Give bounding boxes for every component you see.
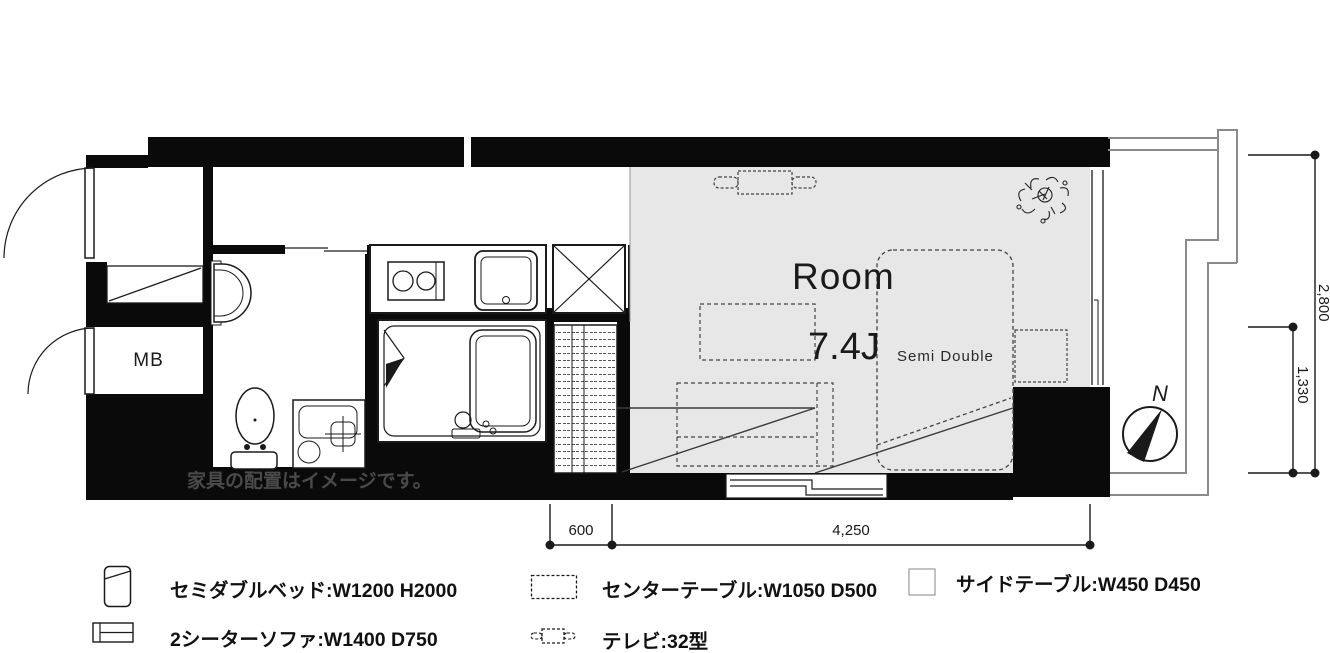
legend-side-table-label: サイドテーブル:W450 D450 [956,568,1201,597]
dimension-room-depth: 2,800 [1315,284,1330,322]
meter-box-label: MB [94,327,203,394]
side-table-icon [908,568,937,602]
compass [1123,407,1177,462]
tv-icon [530,627,576,650]
kitchen-counter [370,245,546,313]
dimension-balcony-depth: 1,330 [1294,366,1311,404]
floorplan-canvas: Room 7.4J Semi Double MB N 家具の配置はイメージです。… [0,0,1330,653]
bed-size-label: Semi Double [897,348,994,365]
bed-icon [103,565,133,614]
room-name-label: Room [792,256,895,298]
refrigerator-space [553,245,629,313]
bathroom [378,320,546,442]
meter-box-door [28,328,94,394]
dimension-entry-width: 600 [550,522,612,539]
toilet-sliding-door [285,245,367,254]
entry-door [4,168,94,258]
legend-tv-label: テレビ:32型 [602,625,708,653]
storage-closet [554,325,617,473]
pillar [1013,387,1110,497]
room-size-label: 7.4J [808,326,880,369]
dimension-right [1248,151,1320,478]
legend-center-table-label: センターテーブル:W1050 D500 [602,574,877,603]
center-table-icon [530,574,578,605]
legend-bed-label: セミダブルベッド:W1200 H2000 [170,574,457,603]
sofa-icon [92,622,134,649]
shoe-cabinet [107,266,203,303]
window-right [1090,167,1110,387]
watermark-text: 家具の配置はイメージです。 [187,466,432,493]
legend-sofa-label: 2シーターソファ:W1400 D750 [170,623,438,652]
window-bottom [726,474,887,498]
dimension-room-width: 4,250 [612,522,1090,539]
compass-north-label: N [1152,381,1168,407]
washing-machine-pan [293,400,365,468]
